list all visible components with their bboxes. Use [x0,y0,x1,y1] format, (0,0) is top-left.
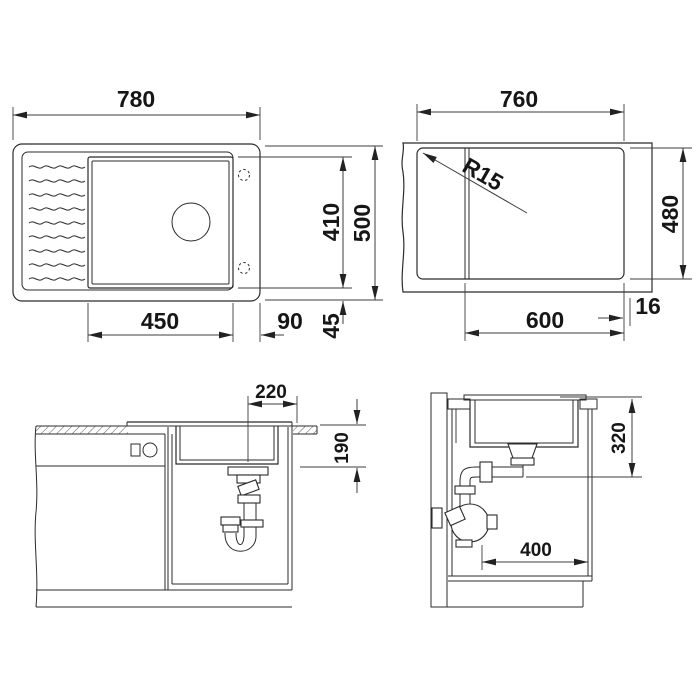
dim-outlet-drop: 320 [609,422,630,454]
bowl-section-front [176,426,278,464]
sink-technical-drawing: 780 500 410 45 450 90 R15 [0,0,700,700]
trap-bend-outer [225,533,256,551]
drain-flange [228,467,268,475]
bowl-section-side [470,400,578,447]
cutout-view-dimensions: 760 480 600 16 [417,86,692,341]
drain-flange-side [508,444,537,458]
dim-cutout-width: 760 [500,86,538,112]
dim-bowl-length: 450 [141,308,179,334]
left-cabinet [35,426,165,607]
sink-rim-side [464,395,586,400]
front-view-dimensions: 220 190 [248,382,366,493]
dim-from-fold: 600 [526,307,564,333]
dim-tap-deck: 90 [277,308,303,334]
side-view-dimensions: 320 400 [482,397,642,570]
dim-cutout-depth: 480 [657,195,683,233]
siphon-front [221,467,268,551]
dim-bowl-edge-offset: 45 [318,313,344,339]
worktop-hatch-right [293,426,317,434]
dim-overall-depth: 500 [349,204,375,242]
sink-cabinet-front [36,427,292,607]
drainboard-waves [29,166,85,280]
dim-bowl-width: 410 [318,203,344,241]
top-view-dimensions: 780 500 410 45 450 90 [13,86,383,342]
torn-edge [35,426,37,607]
dim-edge: 16 [635,293,661,319]
drawing-canvas: 780 500 410 45 450 90 R15 [0,0,700,700]
control-knob [143,443,157,457]
top-view: 780 500 410 45 450 90 [13,86,383,342]
siphon-side [432,444,537,547]
worktop-hatch-left [36,426,128,434]
bowl-inner-outline [92,161,229,284]
trap-cap [221,517,240,525]
worktop-edge [402,143,652,292]
tap-hole-bottom [239,263,250,274]
dim-base-clearance: 400 [520,540,552,561]
bowl-outline [88,157,233,288]
wall-hatch [431,393,447,607]
cutout-view: R15 760 480 600 16 [402,86,692,341]
dim-drain-offset: 220 [255,382,287,403]
drain-hole [172,203,210,241]
trap-bend-inner [236,533,244,545]
wall-outlet [432,508,442,528]
control-square [131,444,140,456]
dim-bowl-depth: 190 [332,432,353,464]
side-section-view: 320 400 [431,393,642,607]
front-section-view: 220 190 [35,382,366,607]
sink-inner-rim [22,152,233,290]
tap-hole-top [239,170,250,181]
dim-corner-radius: R15 [458,152,508,196]
dim-overall-width: 780 [117,86,155,112]
